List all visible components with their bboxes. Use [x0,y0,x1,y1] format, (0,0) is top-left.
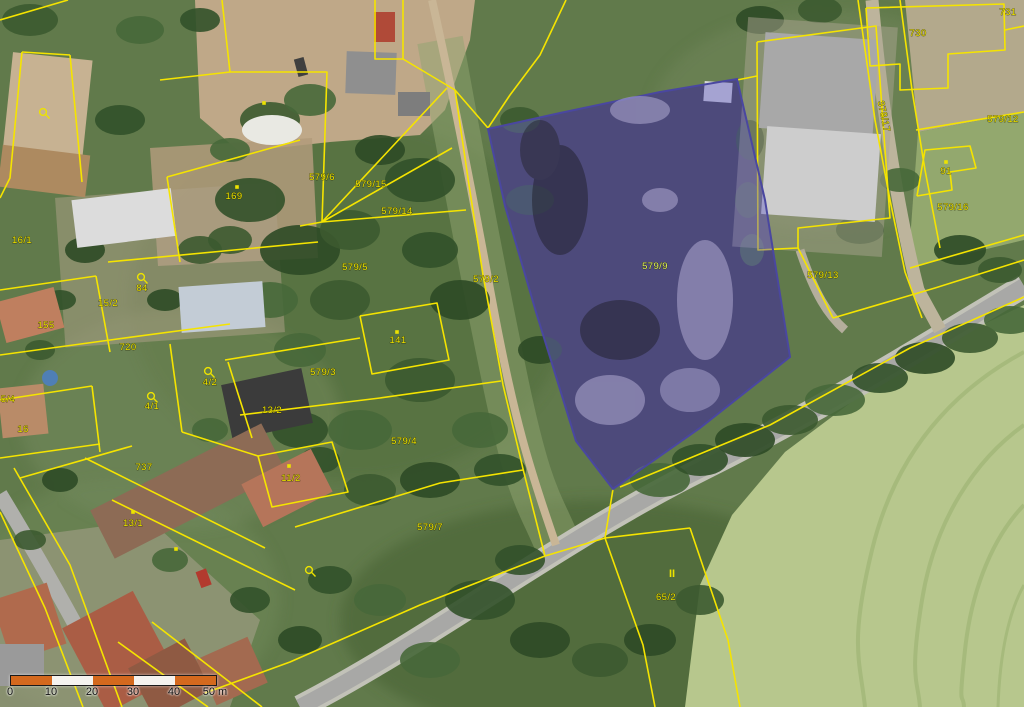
building-point-icon [395,330,399,334]
tree [278,626,322,654]
parcel-label-579-3: 579/3 [310,367,336,378]
scale-bar-segment [134,676,175,685]
tree [934,235,986,265]
tree [978,257,1022,283]
parcel-label-15-2: 15/2 [98,298,118,309]
scale-bar-ticks: 01020304050 m [10,686,215,700]
tree [310,280,370,320]
tree [320,210,380,250]
tree [354,584,406,616]
building-point-icon [944,160,948,164]
scale-bar-tick-label: 10 [45,686,57,698]
parcel-label-579-15: 579/15 [355,179,386,190]
parcel-label-579-7: 579/7 [417,522,443,533]
tree [400,642,460,678]
tree [42,468,78,492]
parcel-label-579-13: 579/13 [807,270,838,281]
parcel-label-5-4: 5/4 [1,394,15,405]
parcel-label-579-9: 579/9 [642,261,668,272]
tree [445,580,515,620]
tree [452,412,508,448]
tree [180,8,220,32]
building-point-icon [235,185,239,189]
tree [210,138,250,162]
tree [308,566,352,594]
parcel-label-579-2: 579/2 [473,274,499,285]
white-mound [242,115,302,145]
tree [762,405,818,435]
tree [230,587,270,613]
building-point-icon [174,547,178,551]
tree [147,289,183,311]
ellipse-shape [642,188,678,212]
scale-bar-segment [175,676,216,685]
parcel-label-16: 16 [17,424,28,435]
tree [624,624,676,656]
scale-bar-segment [93,676,134,685]
tree [895,342,955,374]
tree [178,236,222,264]
tree [328,410,392,450]
parcel-label-731: 731 [999,7,1016,18]
tree [2,4,58,36]
parcel-label-84: 84 [136,283,147,294]
warehouse-roof-south [761,126,881,222]
tree [152,548,188,572]
meadow-symbol-icon: II [669,568,675,580]
parcel-label-4-1: 4/1 [145,401,159,412]
polygon-shape [905,0,1024,132]
parcel-label-4-2: 4/2 [203,377,217,388]
scale-bar-tick-label: 0 [7,686,13,698]
parcel-label-65-2: 65/2 [656,592,676,603]
parcel-label-91: 91 [940,166,951,177]
ellipse-shape [520,120,560,180]
ellipse-shape [610,96,670,124]
parcel-label-155: 155 [37,320,54,331]
scale-bar-segment [52,676,93,685]
building-point-icon [262,101,266,105]
tree [402,232,458,268]
scale-bar-segment [11,676,52,685]
map-art: II 16/18415/21557205/4164/24/113/273711/… [0,0,1024,707]
parcel-label-169: 169 [225,191,242,202]
parcel-label-11-2: 11/2 [281,473,300,484]
ellipse-shape [677,240,733,360]
tree [192,418,228,442]
ellipse-shape [575,375,645,425]
building-point-icon [131,510,135,514]
parcel-label-141: 141 [389,335,406,346]
tree [852,363,908,393]
parcel-label-737: 737 [135,462,152,473]
tree [284,84,336,116]
map-scale-bar: 01020304050 m [8,672,268,702]
parcel-label-13-2: 13/2 [262,405,282,416]
tree [715,423,775,457]
parcel-label-579-4: 579/4 [391,436,417,447]
parcel-label-579-16: 579/16 [937,202,968,213]
scale-bar-segments [10,675,217,686]
ellipse-shape [580,300,660,360]
tree [95,105,145,135]
parcel-label-579-6: 579/6 [309,172,335,183]
parcel-label-13-1: 13/1 [123,518,143,529]
scale-bar-tick-label: 30 [127,686,139,698]
farm-shed [345,51,396,95]
parcel-label-579-12: 579/12 [987,114,1018,125]
tree [116,16,164,44]
pool [42,370,58,386]
parcel-label-579-5: 579/5 [342,262,368,273]
parcel-label-16-1: 16/1 [12,235,32,246]
tree [14,530,46,550]
scale-bar-tick-label: 50 m [203,686,227,698]
tree [572,643,628,677]
tree [495,545,545,575]
parcel-label-579-14: 579/14 [381,206,412,217]
cadastral-map-canvas[interactable]: II 16/18415/21557205/4164/24/113/273711/… [0,0,1024,707]
parcel-label-720: 720 [119,342,136,353]
warehouse-roof-north [759,32,879,136]
scale-bar-tick-label: 40 [168,686,180,698]
scale-bar-tick-label: 20 [86,686,98,698]
parcel-label-730: 730 [909,28,926,39]
tree [510,622,570,658]
building-point-icon [287,464,291,468]
tree [676,585,724,615]
red-roof-building [374,12,395,42]
ellipse-shape [660,368,720,412]
tree [344,474,396,506]
